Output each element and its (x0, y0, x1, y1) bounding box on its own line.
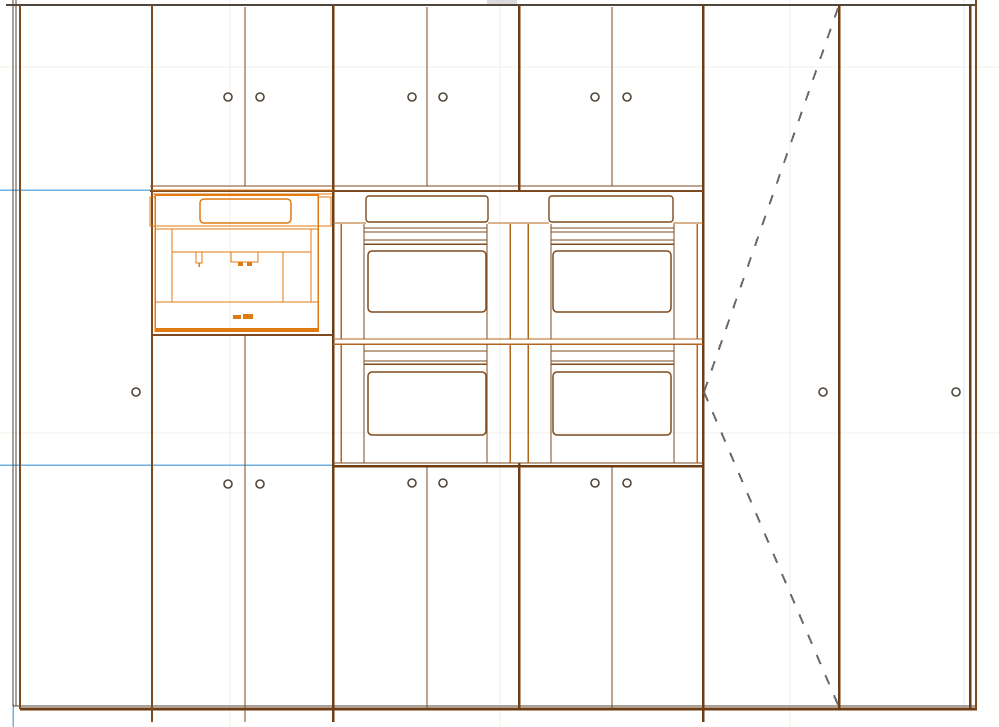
door-knob[interactable] (591, 93, 599, 101)
door-swing-dash-upper[interactable] (704, 8, 838, 392)
door-knob[interactable] (256, 93, 264, 101)
oven-control-panel-top-right[interactable] (549, 196, 673, 222)
door-knob[interactable] (408, 93, 416, 101)
door-knob[interactable] (224, 93, 232, 101)
door-knob[interactable] (623, 93, 631, 101)
door-knob[interactable] (132, 388, 140, 396)
oven-window-bottom-left[interactable] (368, 372, 486, 435)
coffee-machine-layer (150, 190, 333, 331)
elevation-drawing-canvas[interactable] (0, 0, 999, 727)
canvas-artifact-tick (487, 0, 517, 4)
coffee-machine-body[interactable] (155, 195, 318, 331)
oven-layer (333, 196, 703, 463)
door-swing-dash-lower[interactable] (704, 392, 839, 707)
door-knob[interactable] (591, 479, 599, 487)
coffee-machine-display[interactable] (200, 199, 291, 223)
coffee-machine-steam-wand[interactable] (196, 252, 202, 263)
door-swing-layer (704, 8, 839, 707)
door-knob[interactable] (439, 93, 447, 101)
oven-window-bottom-right[interactable] (553, 372, 671, 435)
door-knob[interactable] (408, 479, 416, 487)
coffee-machine-nozzle[interactable] (247, 262, 252, 266)
grid-layer (0, 0, 999, 727)
coffee-machine-nozzle[interactable] (238, 262, 243, 266)
cabinet-structure-layer (6, 0, 977, 722)
coffee-machine-logo-mark (243, 314, 253, 319)
door-knob[interactable] (224, 480, 232, 488)
coffee-machine-spout[interactable] (231, 252, 258, 262)
door-knob[interactable] (256, 480, 264, 488)
knob-layer (132, 93, 960, 488)
oven-window-top-right[interactable] (553, 251, 671, 312)
door-knob[interactable] (952, 388, 960, 396)
oven-control-panel-top-left[interactable] (366, 196, 488, 222)
door-knob[interactable] (819, 388, 827, 396)
door-knob[interactable] (439, 479, 447, 487)
cad-viewport[interactable] (0, 0, 999, 727)
coffee-machine-logo-mark (233, 315, 241, 319)
door-knob[interactable] (623, 479, 631, 487)
oven-window-top-left[interactable] (368, 251, 486, 312)
guide-layer (0, 190, 334, 727)
coffee-machine-trim-right[interactable] (318, 197, 331, 226)
